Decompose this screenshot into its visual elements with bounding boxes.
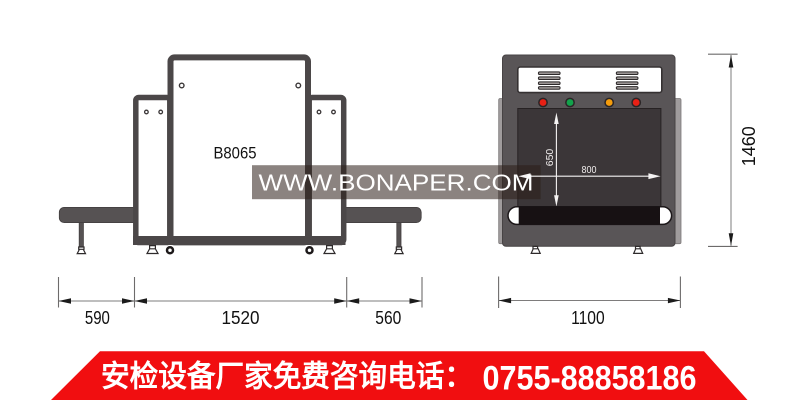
svg-text:B8065: B8065 [214, 144, 257, 163]
svg-text:安检设备厂家免费咨询电话：: 安检设备厂家免费咨询电话： [101, 360, 473, 394]
svg-text:1520: 1520 [222, 308, 260, 328]
svg-text:0755-88858186: 0755-88858186 [483, 360, 697, 398]
svg-text:1100: 1100 [571, 308, 605, 328]
svg-text:650: 650 [545, 148, 556, 166]
svg-text:800: 800 [582, 164, 597, 176]
svg-text:590: 590 [85, 308, 110, 328]
svg-text:1460: 1460 [739, 126, 759, 166]
svg-text:WWW.BONAPER.COM: WWW.BONAPER.COM [259, 169, 534, 195]
svg-text:560: 560 [375, 308, 401, 328]
